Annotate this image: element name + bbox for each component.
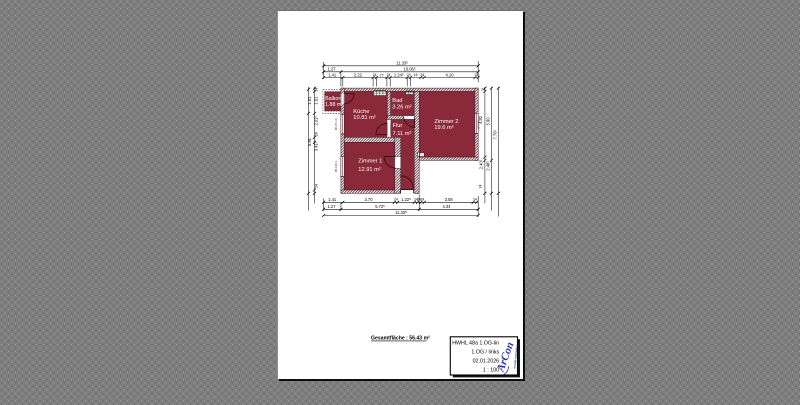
- svg-text:88-138 L: 88-138 L: [477, 117, 481, 129]
- svg-text:1.27: 1.27: [328, 204, 337, 209]
- svg-text:2.22: 2.22: [354, 73, 363, 78]
- svg-text:88-138 L: 88-138 L: [334, 160, 338, 172]
- svg-text:1.61: 1.61: [307, 96, 312, 105]
- svg-text:24: 24: [387, 73, 391, 77]
- svg-text:4.34: 4.34: [443, 204, 452, 209]
- svg-text:12.91 m²: 12.91 m²: [358, 167, 381, 173]
- svg-text:10.81 m²: 10.81 m²: [353, 115, 376, 121]
- svg-text:3.26 m²: 3.26 m²: [392, 104, 411, 110]
- svg-text:24: 24: [481, 87, 485, 91]
- svg-text:1.41: 1.41: [328, 73, 337, 78]
- svg-text:5.91: 5.91: [307, 137, 312, 146]
- svg-text:3.58: 3.58: [445, 197, 454, 202]
- svg-text:5.725: 5.725: [375, 204, 385, 209]
- svg-text:11.335: 11.335: [395, 210, 407, 215]
- svg-text:1.245: 1.245: [394, 73, 404, 78]
- svg-text:1.OG / links: 1.OG / links: [471, 350, 499, 356]
- svg-text:3.415: 3.415: [314, 141, 319, 151]
- svg-text:24: 24: [373, 73, 377, 77]
- svg-text:1.88 m²: 1.88 m²: [325, 102, 343, 108]
- svg-text:24: 24: [315, 88, 319, 92]
- svg-text:24: 24: [315, 132, 319, 136]
- svg-text:3.70: 3.70: [365, 197, 374, 202]
- svg-text:Küche: Küche: [353, 109, 369, 115]
- svg-text:24: 24: [475, 73, 479, 77]
- svg-text:24: 24: [315, 184, 319, 188]
- svg-text:Flur: Flur: [393, 123, 403, 129]
- svg-text:Bad: Bad: [392, 98, 402, 104]
- svg-text:24: 24: [394, 198, 398, 202]
- svg-text:2.405: 2.405: [479, 159, 484, 169]
- svg-text:88-07 LS: 88-07 LS: [334, 118, 338, 130]
- svg-text:1.225: 1.225: [401, 197, 411, 202]
- svg-text:5.90: 5.90: [486, 117, 491, 126]
- svg-text:11.335: 11.335: [396, 60, 408, 65]
- svg-text:02.01.2026: 02.01.2026: [473, 358, 500, 364]
- svg-text:2.015: 2.015: [314, 115, 319, 125]
- svg-text:1.61: 1.61: [314, 96, 319, 105]
- svg-text:1.41: 1.41: [328, 197, 337, 202]
- svg-text:15: 15: [414, 73, 418, 77]
- svg-text:19.6 m²: 19.6 m²: [434, 125, 453, 131]
- svg-text:2.485: 2.485: [486, 161, 491, 171]
- svg-text:10.065: 10.065: [404, 66, 416, 71]
- svg-text:1.27: 1.27: [328, 66, 337, 71]
- svg-text:77: 77: [379, 74, 383, 78]
- svg-text:HWHL 48a 1.OG-lin: HWHL 48a 1.OG-lin: [452, 341, 499, 347]
- svg-text:7.11 m²: 7.11 m²: [393, 131, 412, 137]
- svg-text:4.10: 4.10: [446, 73, 455, 78]
- svg-text:24: 24: [479, 185, 483, 189]
- svg-text:Zimmer 1: Zimmer 1: [358, 159, 382, 165]
- svg-text:24: 24: [421, 73, 425, 77]
- svg-text:24: 24: [473, 198, 477, 202]
- svg-text:24: 24: [407, 73, 411, 77]
- svg-text:7.765: 7.765: [493, 130, 498, 140]
- svg-text:24: 24: [421, 198, 425, 202]
